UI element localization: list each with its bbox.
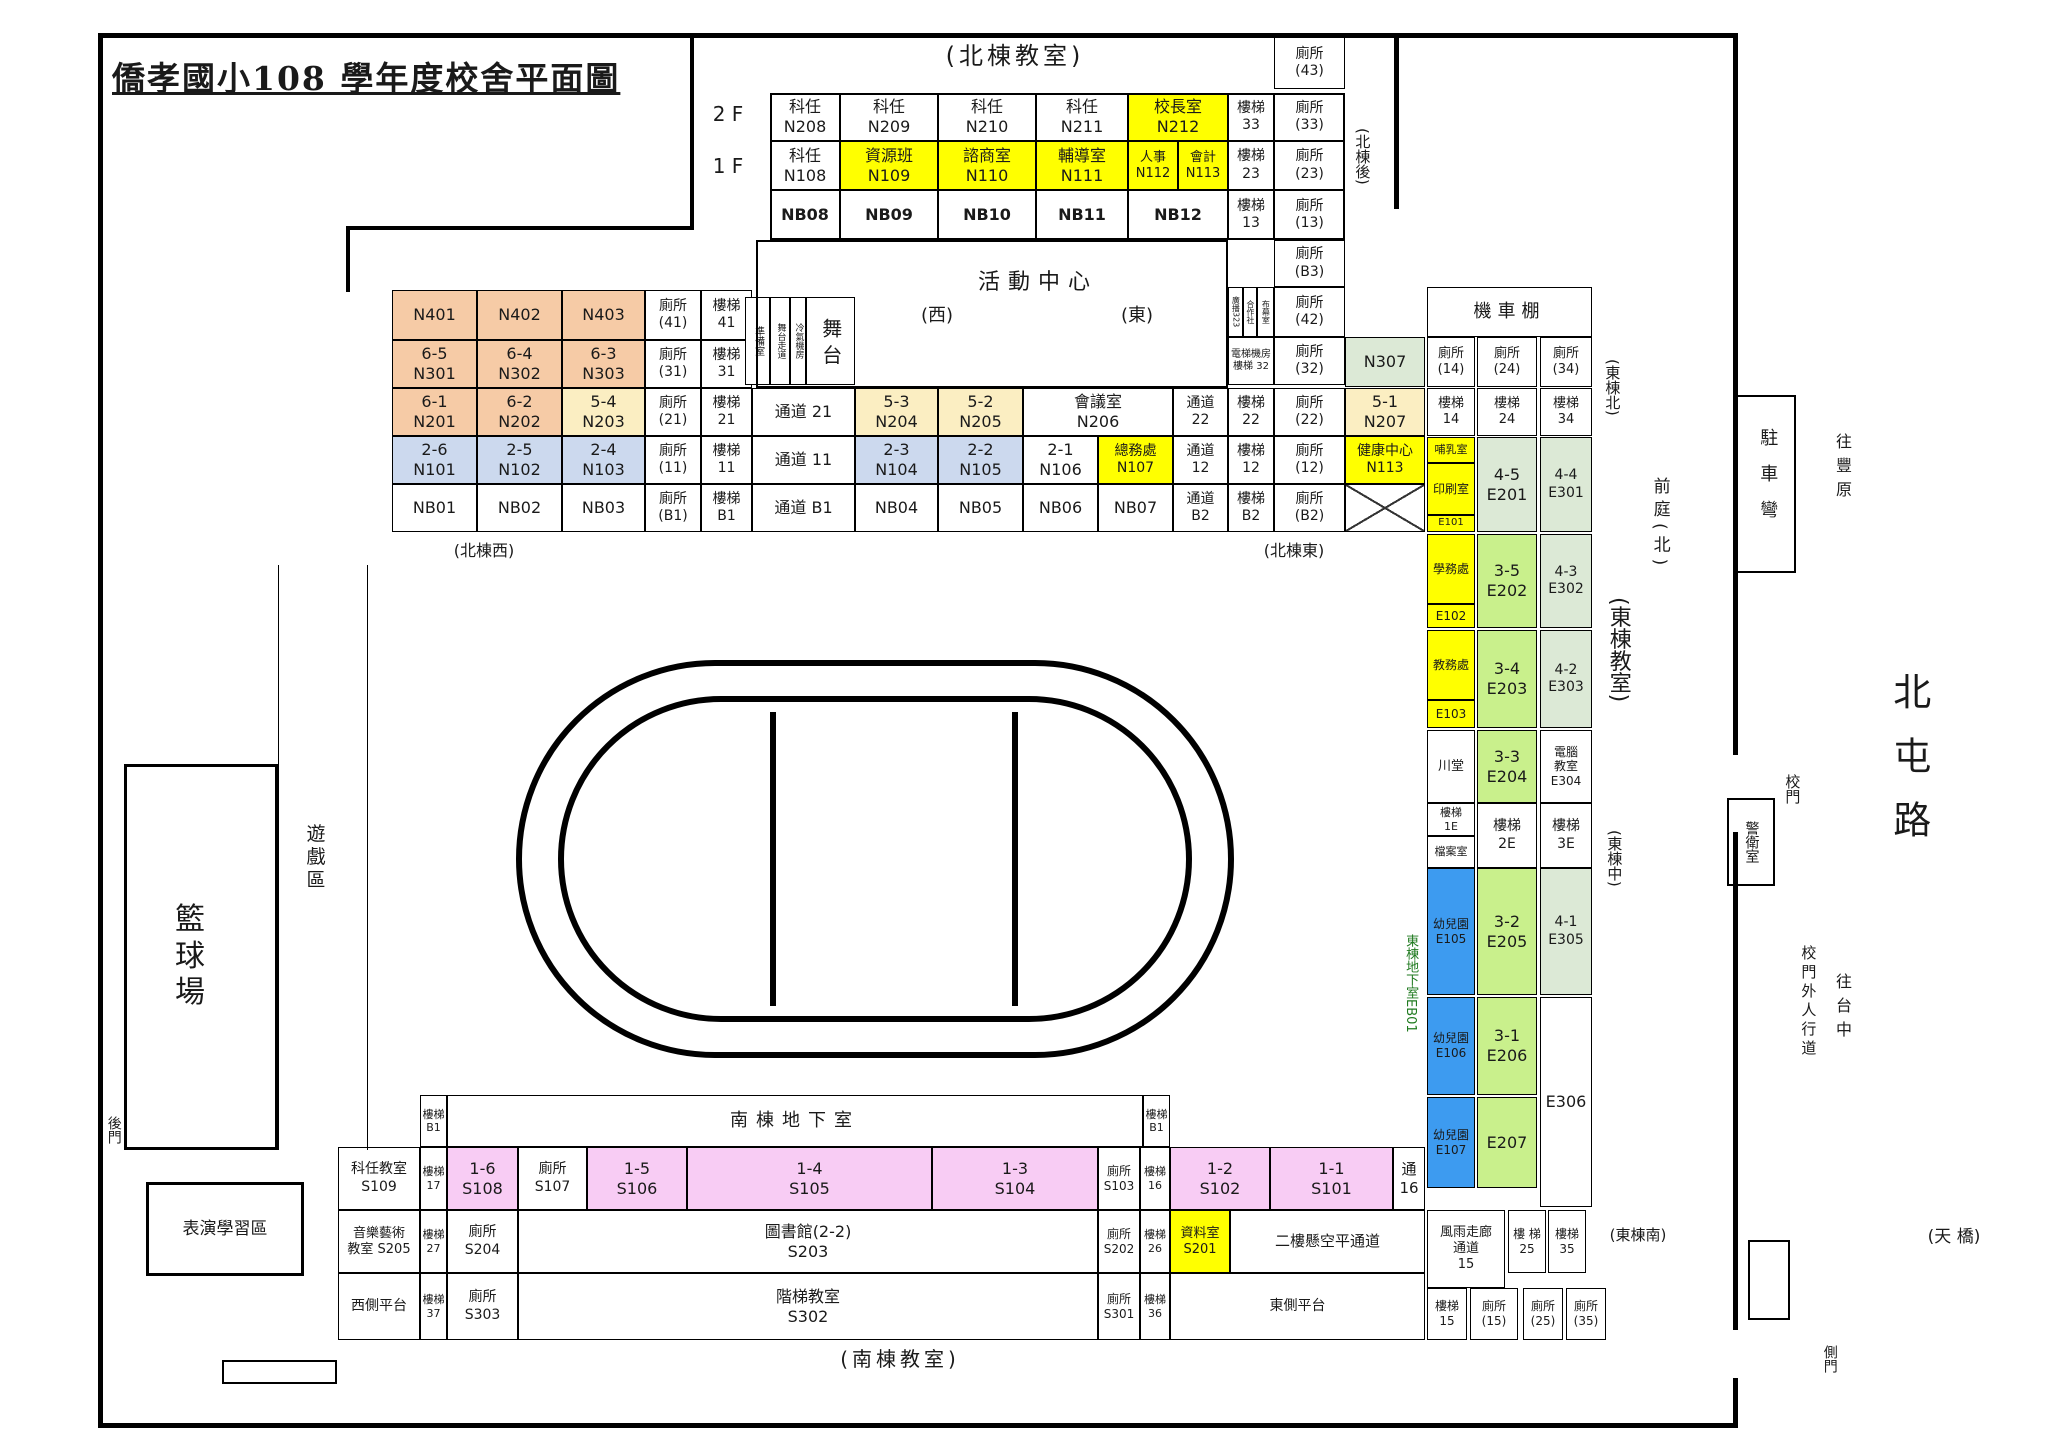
room-s105: 1-4 S105 <box>687 1147 932 1210</box>
room-acad-office: 學務處 <box>1427 534 1475 604</box>
label-north-west-label: (北棟西) <box>428 538 540 564</box>
room-n104: 2-3 N104 <box>855 436 938 484</box>
room-st26: 樓梯 26 <box>1140 1210 1170 1273</box>
room-edu-office: 教務處 <box>1427 630 1475 700</box>
room-n204: 5-3 N204 <box>855 388 938 436</box>
room-e106: 幼兒園 E106 <box>1427 997 1475 1095</box>
bottom-gate-outline <box>222 1360 337 1384</box>
room-st37: 樓梯 37 <box>420 1273 447 1340</box>
room-wc14: 廁所 (14) <box>1427 337 1475 387</box>
room-s204: 廁所 S204 <box>447 1210 518 1273</box>
room-e303: 4-2 E303 <box>1540 630 1592 728</box>
room-pass12: 通道 12 <box>1173 436 1228 484</box>
label-east-mid-label: (東棟中) <box>1598 806 1630 910</box>
room-performance-area: 表演學習區 <box>146 1182 304 1276</box>
room-n207: 5-1 N207 <box>1345 388 1425 436</box>
room-print-room: 印刷室 <box>1427 463 1475 515</box>
room-st34: 樓梯 34 <box>1540 388 1592 436</box>
room-wc24: 廁所 (24) <box>1477 337 1537 387</box>
room-s108: 1-6 S108 <box>447 1147 518 1210</box>
label-side-gate: 側門 <box>1816 1330 1842 1388</box>
room-wc41: 廁所 (41) <box>645 290 701 340</box>
room-n301: 6-5 N301 <box>392 340 477 388</box>
room-nursing: 哺乳室 <box>1427 437 1475 463</box>
room-wc35: 廁所 (35) <box>1566 1288 1606 1340</box>
wall-segment-3 <box>1733 33 1738 755</box>
room-crossed-cell <box>1345 484 1425 532</box>
room-wcb3: 廁所 (B3) <box>1274 240 1345 287</box>
room-stb1-south-e: 樓梯 B1 <box>1143 1095 1170 1147</box>
room-west-platform: 西側平台 <box>338 1273 420 1340</box>
room-s301: 廁所 S301 <box>1098 1273 1140 1340</box>
room-e102: E102 <box>1427 604 1475 628</box>
room-wc21: 廁所 (21) <box>645 388 701 436</box>
room-wc12: 廁所 (12) <box>1274 436 1345 484</box>
label-east-north-label: (東棟北) <box>1596 328 1628 446</box>
wall-segment-1 <box>98 33 103 1428</box>
room-e103: E103 <box>1427 700 1475 728</box>
room-s106: 1-5 S106 <box>587 1147 687 1210</box>
bridge-stair-outline <box>1748 1240 1790 1320</box>
room-s302: 階梯教室 S302 <box>518 1273 1098 1340</box>
room-n103: 2-4 N103 <box>562 436 645 484</box>
room-nb03: NB03 <box>562 484 645 532</box>
room-coop: 合作社 <box>1243 287 1257 337</box>
room-n201: 6-1 N201 <box>392 388 477 436</box>
room-n102: 2-5 N102 <box>477 436 562 484</box>
room-n403: N403 <box>562 290 645 340</box>
room-pass21: 通道 21 <box>752 388 855 436</box>
room-nb04: NB04 <box>855 484 938 532</box>
label-floor-1f: 1 F <box>700 150 756 182</box>
room-stb1: 樓梯 B1 <box>701 484 752 532</box>
room-passb1: 通道 B1 <box>752 484 855 532</box>
room-n206: 會議室 N206 <box>1023 388 1173 436</box>
room-st16: 樓梯 16 <box>1140 1147 1170 1210</box>
room-st35: 樓梯 35 <box>1548 1210 1586 1273</box>
room-s202: 廁所 S202 <box>1098 1210 1140 1273</box>
label-to-taichung: 往台中 <box>1826 950 1858 1068</box>
room-s203: 圖書館(2-2) S203 <box>518 1210 1098 1273</box>
room-stb2: 樓梯 B2 <box>1228 484 1274 532</box>
school-floor-plan: 僑孝國小108 學年度校舍平面圖 廁所 (43)科任 N208科任 N209科任… <box>0 0 2048 1448</box>
room-s205: 音樂藝術 教室 S205 <box>338 1210 420 1273</box>
activity-hall-outline <box>756 240 1228 388</box>
room-st27: 樓梯 27 <box>420 1210 447 1273</box>
room-wc42: 廁所 (42) <box>1274 287 1345 337</box>
room-sky-walkway: 二樓懸空平通道 <box>1230 1210 1425 1273</box>
room-rain-corridor: 風雨走廊 通道 15 <box>1427 1210 1505 1288</box>
room-n401: N401 <box>392 290 477 340</box>
wall-segment-2 <box>98 1423 1738 1428</box>
room-e107: 幼兒園 E107 <box>1427 1097 1475 1188</box>
wall-segment-4 <box>1733 832 1738 1330</box>
room-moto-shed: 機車棚 <box>1427 287 1592 337</box>
room-e305: 4-1 E305 <box>1540 868 1592 995</box>
room-st11: 樓梯 11 <box>701 436 752 484</box>
room-east-platform: 東側平台 <box>1170 1273 1425 1340</box>
wall-segment-8 <box>346 226 350 292</box>
room-st36: 樓梯 36 <box>1140 1273 1170 1340</box>
room-pass22: 通道 22 <box>1173 388 1228 436</box>
label-east-south-label: (東棟南) <box>1592 1222 1684 1248</box>
room-wcb2: 廁所 (B2) <box>1274 484 1345 532</box>
running-track-inner <box>558 696 1192 1022</box>
label-sky-bridge: (天 橋) <box>1884 1224 2024 1252</box>
room-e201: 4-5 E201 <box>1477 437 1537 532</box>
room-nb07: NB07 <box>1098 484 1173 532</box>
room-e306: E306 <box>1540 997 1592 1207</box>
room-wc15: 廁所 (15) <box>1470 1288 1518 1340</box>
room-e204: 3-3 E204 <box>1477 730 1537 803</box>
label-beitun-road: 北屯路 <box>1882 645 1934 890</box>
room-st14: 樓梯 14 <box>1427 388 1475 436</box>
room-wc31: 廁所 (31) <box>645 340 701 388</box>
room-n105: 2-2 N105 <box>938 436 1023 484</box>
room-st25: 樓 梯 25 <box>1508 1210 1546 1273</box>
room-wc22: 廁所 (22) <box>1274 388 1345 436</box>
room-s303: 廁所 S303 <box>447 1273 518 1340</box>
room-st21: 樓梯 21 <box>701 388 752 436</box>
room-passb2: 通道 B2 <box>1173 484 1228 532</box>
room-elev-st32: 電梯機房 樓梯 32 <box>1228 337 1274 385</box>
room-foyer: 川堂 <box>1427 730 1475 803</box>
room-nb01: NB01 <box>392 484 477 532</box>
room-south-basement: 南棟地下室 <box>447 1095 1143 1147</box>
room-e302: 4-3 E302 <box>1540 534 1592 628</box>
room-n106: 2-1 N106 <box>1023 436 1098 484</box>
room-wc32: 廁所 (32) <box>1274 337 1345 385</box>
room-st24: 樓梯 24 <box>1477 388 1537 436</box>
room-stb1-south-w: 樓梯 B1 <box>420 1095 447 1147</box>
label-south-bldg-label: (南棟教室) <box>788 1344 1012 1374</box>
room-s103: 廁所 S103 <box>1098 1147 1140 1210</box>
room-basketball-court: 籃 球 場 <box>124 764 278 1150</box>
room-st22: 樓梯 22 <box>1228 388 1274 436</box>
room-n101: 2-6 N101 <box>392 436 477 484</box>
room-s101: 1-1 S101 <box>1270 1147 1393 1210</box>
room-st12: 樓梯 12 <box>1228 436 1274 484</box>
room-n303: 6-3 N303 <box>562 340 645 388</box>
room-s104: 1-3 S104 <box>932 1147 1098 1210</box>
wall-segment-5 <box>1733 1378 1738 1428</box>
room-pass16: 通 16 <box>1393 1147 1425 1210</box>
room-nb06: NB06 <box>1023 484 1098 532</box>
room-nb02: NB02 <box>477 484 562 532</box>
room-st2e: 樓梯 2E <box>1477 803 1537 868</box>
room-n402: N402 <box>477 290 562 340</box>
label-floor-2f: 2 F <box>700 98 756 130</box>
room-wc11: 廁所 (11) <box>645 436 701 484</box>
room-n113-health: 健康中心 N113 <box>1345 436 1425 484</box>
room-e301: 4-4 E301 <box>1540 437 1592 532</box>
room-curtain: 布幕室 <box>1257 287 1274 337</box>
wall-segment-7 <box>346 226 694 230</box>
room-archive: 檔案室 <box>1427 836 1475 868</box>
wall-segment-6 <box>690 33 694 229</box>
parking-bay-outline <box>1734 395 1796 573</box>
room-e202: 3-5 E202 <box>1477 534 1537 628</box>
room-n107: 總務處 N107 <box>1098 436 1173 484</box>
label-school-gate: 校門 <box>1778 750 1806 828</box>
room-e105: 幼兒園 E105 <box>1427 868 1475 995</box>
room-e203: 3-4 E203 <box>1477 630 1537 728</box>
label-front-court: 前庭(北) <box>1640 462 1678 587</box>
north-block-outline <box>770 93 1345 240</box>
label-sidewalk-outside: 校門外人行道 <box>1794 902 1822 1102</box>
room-st3e: 樓梯 3E <box>1540 803 1592 868</box>
label-east-bldg-label: (東棟教室) <box>1598 552 1638 748</box>
room-n302: 6-4 N302 <box>477 340 562 388</box>
label-to-fengyuan: 往豐原 <box>1826 410 1858 528</box>
room-e206: 3-1 E206 <box>1477 997 1537 1095</box>
room-pass11: 通道 11 <box>752 436 855 484</box>
room-st17: 樓梯 17 <box>420 1147 447 1210</box>
label-north-east-label: (北棟東) <box>1238 538 1350 564</box>
label-north-bldg-title: (北棟教室) <box>900 40 1130 72</box>
room-e207: E207 <box>1477 1097 1537 1188</box>
label-east-basement: 東棟地下室EB01 <box>1394 870 1426 1096</box>
room-nb05: NB05 <box>938 484 1023 532</box>
room-e304: 電腦 教室 E304 <box>1540 730 1592 803</box>
room-broadcast: 廣播323 <box>1228 287 1243 337</box>
wall-segment-0 <box>98 33 1738 38</box>
label-back-gate: 後門 <box>100 1101 126 1159</box>
room-st1e: 樓梯 1E <box>1427 803 1475 836</box>
room-wc43: 廁所 (43) <box>1274 37 1345 89</box>
room-wc25: 廁所 (25) <box>1523 1288 1563 1340</box>
room-s201: 資料室 S201 <box>1170 1210 1230 1273</box>
room-e101: E101 <box>1427 515 1475 532</box>
page-title: 僑孝國小108 學年度校舍平面圖 <box>112 52 632 102</box>
room-wc34: 廁所 (34) <box>1540 337 1592 387</box>
room-s107: 廁所 S107 <box>518 1147 587 1210</box>
room-n205: 5-2 N205 <box>938 388 1023 436</box>
room-play-area: 遊 戲 區 <box>278 565 368 1150</box>
room-s109: 科任教室 S109 <box>338 1147 420 1210</box>
room-n202: 6-2 N202 <box>477 388 562 436</box>
room-e205: 3-2 E205 <box>1477 868 1537 995</box>
wall-segment-9 <box>1394 33 1399 209</box>
room-wcb1: 廁所 (B1) <box>645 484 701 532</box>
room-n307: N307 <box>1345 337 1425 387</box>
room-n203: 5-4 N203 <box>562 388 645 436</box>
room-s102: 1-2 S102 <box>1170 1147 1270 1210</box>
room-st15: 樓梯 15 <box>1427 1288 1467 1340</box>
label-north-rear: (北棟後) <box>1348 100 1376 212</box>
